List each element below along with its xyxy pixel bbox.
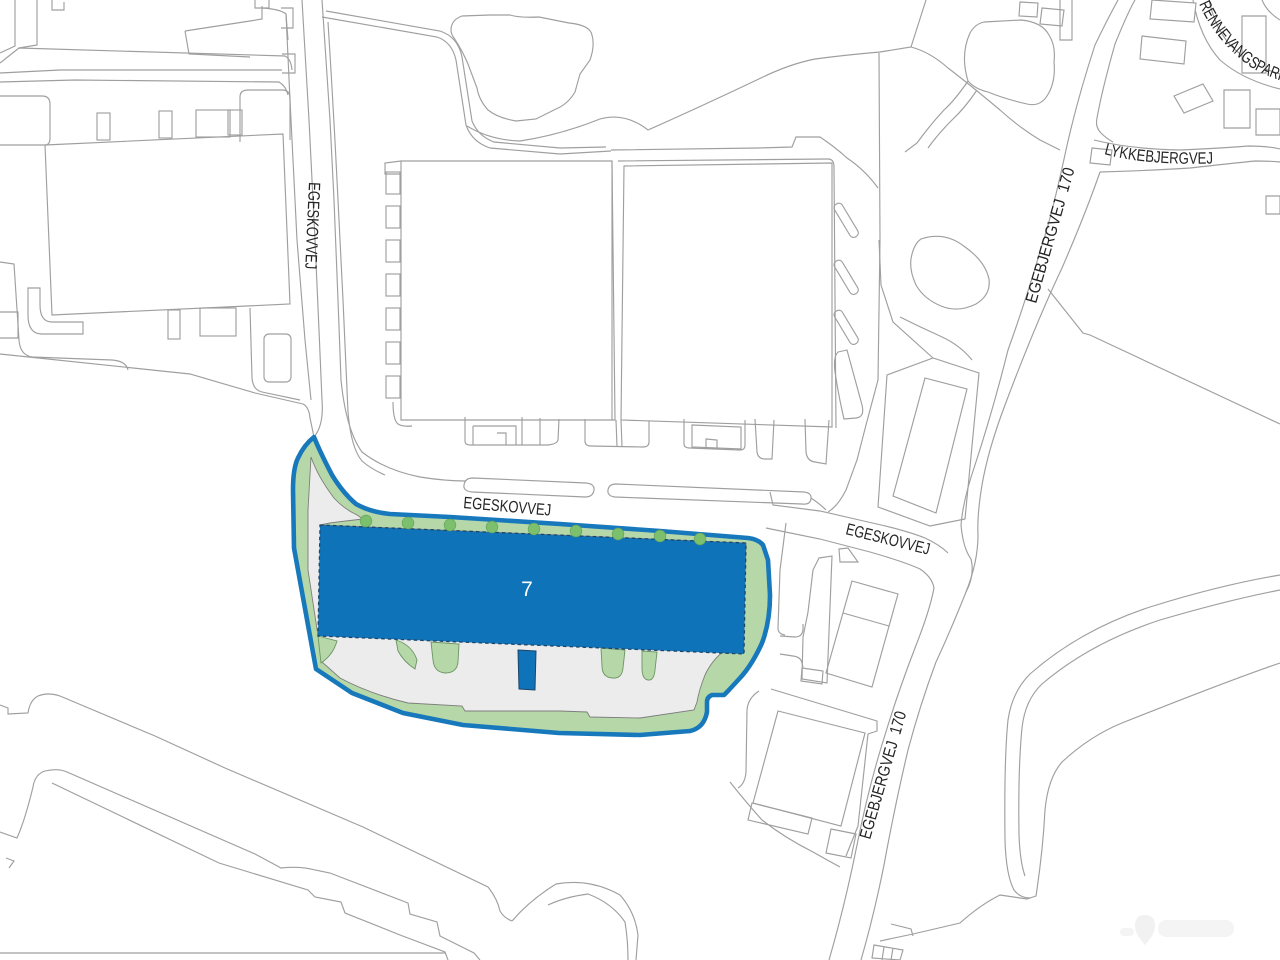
svg-text:EGESKOVVEJ: EGESKOVVEJ [301, 182, 323, 270]
svg-text:7: 7 [521, 578, 533, 601]
